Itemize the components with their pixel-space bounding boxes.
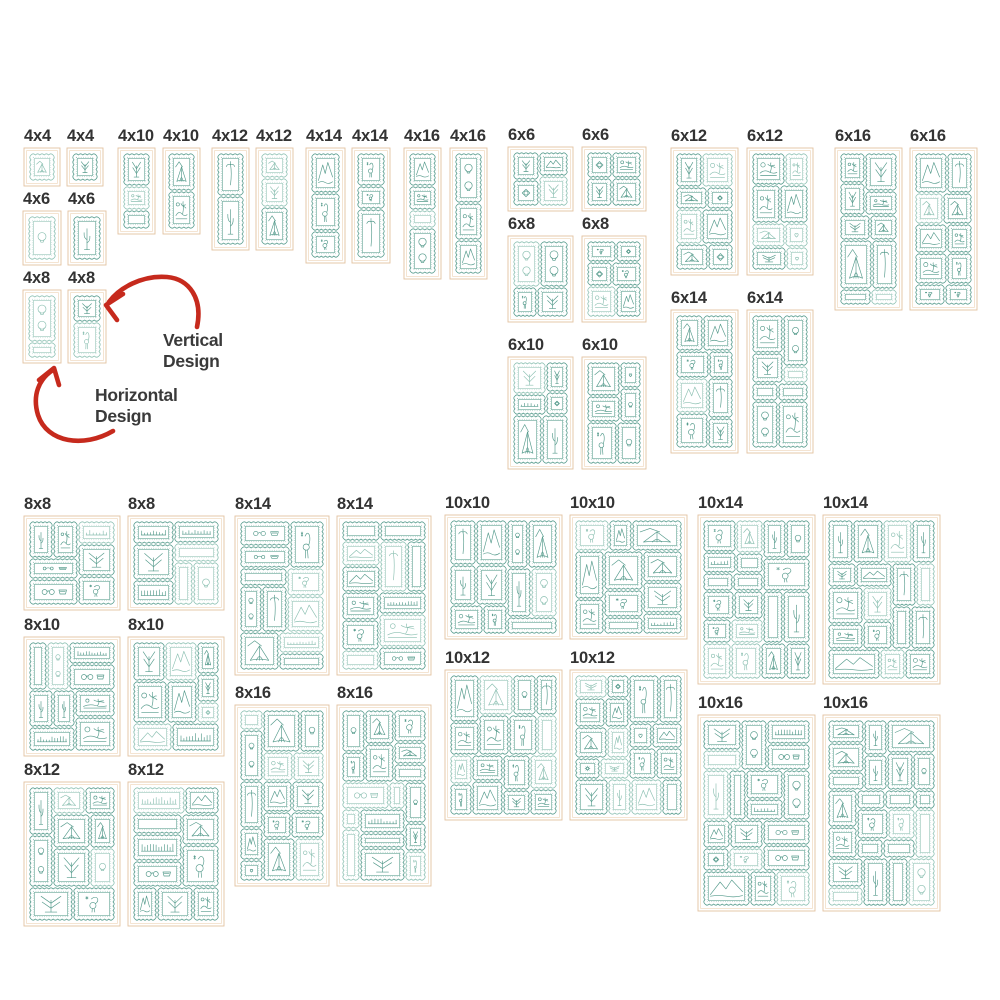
size-label-6x14-horizontal: 6x14 [671, 290, 707, 307]
panel-4x8-horizontal [23, 290, 61, 363]
stamp [473, 782, 502, 814]
size-label-4x10-vertical: 4x10 [163, 128, 199, 145]
size-label-4x14-vertical: 4x14 [352, 128, 388, 145]
panel-6x10-horizontal [508, 357, 573, 469]
panel-4x12-vertical [256, 148, 293, 250]
panel-4x6-horizontal [23, 211, 61, 265]
horizontal-design-line2: Design [95, 406, 178, 427]
size-label-8x10-vertical: 8x10 [128, 617, 164, 634]
panel-4x12-horizontal [212, 148, 249, 250]
panel-8x12-horizontal [24, 782, 120, 926]
size-label-8x8-horizontal: 8x8 [24, 496, 51, 513]
product-size-chart: 4x44x44x64x64x84x84x104x104x124x124x144x… [0, 0, 1000, 1000]
size-label-4x14-horizontal: 4x14 [306, 128, 342, 145]
panel-4x6-vertical [68, 211, 106, 265]
panel-4x16-vertical [450, 148, 487, 279]
panel-10x16-vertical [823, 715, 940, 911]
panel-4x10-horizontal [118, 148, 155, 234]
panel-4x8-vertical [68, 290, 106, 363]
panel-6x12-horizontal [671, 148, 738, 275]
panel-8x16-vertical [337, 705, 431, 886]
size-label-10x10-vertical: 10x10 [570, 495, 615, 512]
panel-8x8-horizontal [24, 516, 120, 610]
size-label-6x10-horizontal: 6x10 [508, 337, 544, 354]
size-label-4x12-horizontal: 4x12 [212, 128, 248, 145]
panel-6x14-horizontal [671, 310, 738, 453]
vertical-design-label: Vertical Design [163, 330, 223, 372]
size-label-8x10-horizontal: 8x10 [24, 617, 60, 634]
size-label-4x8-horizontal: 4x8 [23, 270, 50, 287]
stamp [588, 363, 619, 395]
panel-4x4-horizontal [24, 148, 60, 186]
size-label-8x12-horizontal: 8x12 [24, 762, 60, 779]
panel-8x14-horizontal [235, 516, 329, 675]
size-label-6x12-vertical: 6x12 [747, 128, 783, 145]
size-label-8x16-vertical: 8x16 [337, 685, 373, 702]
panel-6x14-vertical [747, 310, 813, 453]
size-label-4x4-vertical: 4x4 [67, 128, 94, 145]
size-label-6x6-horizontal: 6x6 [508, 127, 535, 144]
size-label-4x4-horizontal: 4x4 [24, 128, 51, 145]
size-label-8x14-vertical: 8x14 [337, 496, 373, 513]
size-label-4x16-horizontal: 4x16 [404, 128, 440, 145]
panel-8x16-horizontal [235, 705, 329, 886]
panel-6x16-horizontal [835, 148, 902, 310]
size-label-6x16-vertical: 6x16 [910, 128, 946, 145]
stamp [514, 363, 545, 393]
size-label-4x10-horizontal: 4x10 [118, 128, 154, 145]
size-label-6x14-vertical: 6x14 [747, 290, 783, 307]
panel-4x14-horizontal [306, 148, 345, 263]
panel-6x8-vertical [582, 236, 646, 322]
size-label-4x16-vertical: 4x16 [450, 128, 486, 145]
panel-4x16-horizontal [404, 148, 441, 279]
panel-10x12-horizontal [445, 670, 562, 820]
panel-10x14-vertical [823, 515, 940, 684]
size-label-4x8-vertical: 4x8 [68, 270, 95, 287]
stamp [293, 782, 323, 811]
size-label-6x10-vertical: 6x10 [582, 337, 618, 354]
size-label-6x16-horizontal: 6x16 [835, 128, 871, 145]
size-label-8x8-vertical: 8x8 [128, 496, 155, 513]
vertical-design-arrow [106, 277, 198, 327]
size-label-10x16-vertical: 10x16 [823, 695, 868, 712]
panel-10x10-horizontal [445, 515, 562, 639]
panel-6x10-vertical [582, 357, 646, 469]
panel-8x10-vertical [128, 637, 224, 756]
size-label-4x12-vertical: 4x12 [256, 128, 292, 145]
size-label-6x6-vertical: 6x6 [582, 127, 609, 144]
size-label-8x16-horizontal: 8x16 [235, 685, 271, 702]
vertical-design-line2: Design [163, 351, 223, 372]
size-label-10x14-vertical: 10x14 [823, 495, 868, 512]
panel-6x16-vertical [910, 148, 977, 310]
size-label-10x10-horizontal: 10x10 [445, 495, 490, 512]
size-label-10x14-horizontal: 10x14 [698, 495, 743, 512]
panel-4x14-vertical [352, 148, 390, 263]
size-label-4x6-horizontal: 4x6 [23, 191, 50, 208]
panel-4x4-vertical [67, 148, 103, 186]
vertical-design-line1: Vertical [163, 330, 223, 351]
panel-10x10-vertical [570, 515, 687, 639]
panel-8x10-horizontal [24, 637, 120, 756]
panel-4x10-vertical [163, 148, 200, 234]
panel-6x6-vertical [582, 147, 646, 211]
panel-8x8-vertical [128, 516, 224, 610]
size-label-4x6-vertical: 4x6 [68, 191, 95, 208]
horizontal-design-line1: Horizontal [95, 385, 178, 406]
horizontal-design-label: Horizontal Design [95, 385, 178, 427]
panel-10x16-horizontal [698, 715, 815, 911]
size-label-10x16-horizontal: 10x16 [698, 695, 743, 712]
size-label-6x8-vertical: 6x8 [582, 216, 609, 233]
panel-6x6-horizontal [508, 147, 573, 211]
stamp [576, 728, 606, 757]
panel-6x8-horizontal [508, 236, 573, 322]
size-label-10x12-vertical: 10x12 [570, 650, 615, 667]
size-label-8x14-horizontal: 8x14 [235, 496, 271, 513]
size-label-8x12-vertical: 8x12 [128, 762, 164, 779]
panel-6x12-vertical [747, 148, 813, 275]
panel-10x12-vertical [570, 670, 687, 820]
size-label-6x12-horizontal: 6x12 [671, 128, 707, 145]
panel-8x14-vertical [337, 516, 431, 675]
size-label-10x12-horizontal: 10x12 [445, 650, 490, 667]
panel-10x14-horizontal [698, 515, 815, 684]
panel-8x12-vertical [128, 782, 224, 926]
size-label-6x8-horizontal: 6x8 [508, 216, 535, 233]
